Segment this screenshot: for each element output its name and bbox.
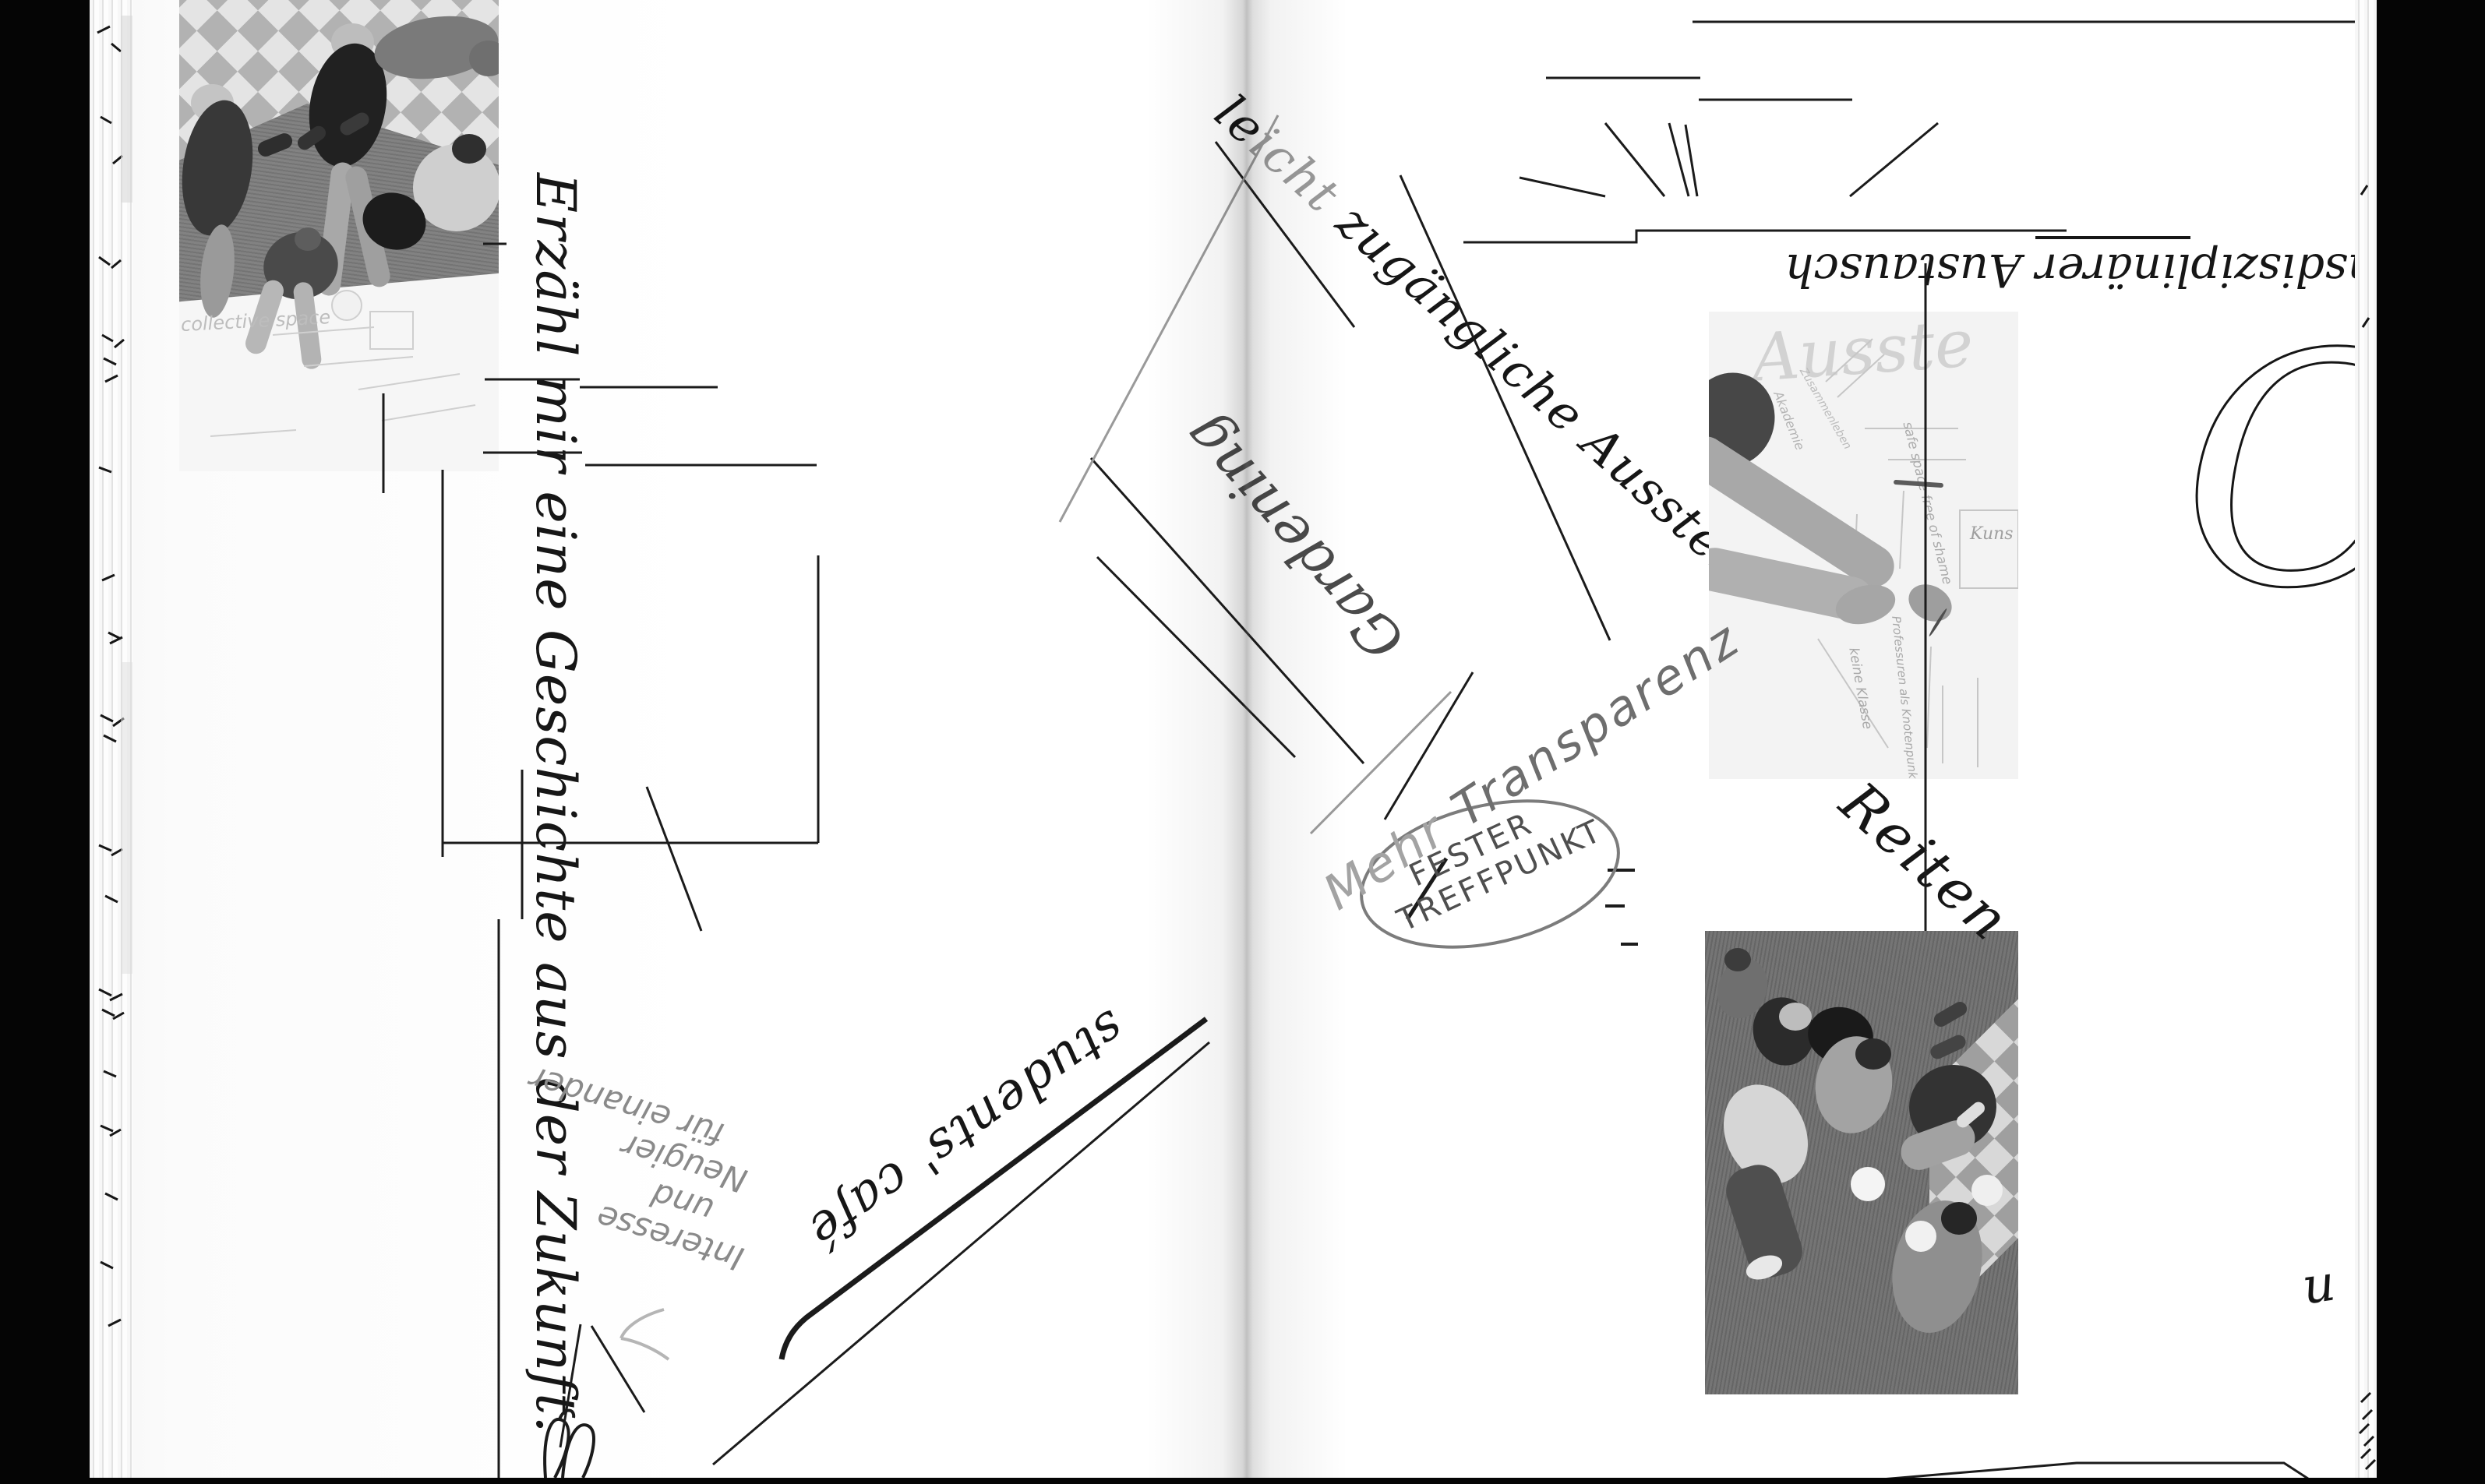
plate-2 — [1971, 1175, 2003, 1206]
fore-edge-left — [90, 0, 132, 1484]
note-austausch: nsdisziplinärer Austausch — [1784, 248, 2377, 293]
photo-writing-hands: Ausste safe space free of shame Akademie… — [1709, 312, 2018, 779]
picnic-person-6-hair — [1941, 1202, 1977, 1235]
plate-1 — [1851, 1167, 1885, 1201]
background-left — [0, 0, 90, 1484]
paper-note-kunst: Kuns — [1970, 526, 2014, 543]
austausch-underlined: linärer — [2035, 236, 2190, 297]
plate-3 — [1905, 1221, 1936, 1252]
book-spread: Erzähl mir eine Geschichte aus der Zukun… — [0, 0, 2485, 1484]
background-right — [2377, 0, 2485, 1484]
photo-picnic-group — [1705, 931, 2018, 1394]
austausch-pre: nsdiszip — [2190, 244, 2377, 297]
picnic-person-2-hair — [1779, 1003, 1812, 1031]
paper-scribbles — [179, 0, 499, 471]
edge-word-fragment: u — [2300, 1258, 2339, 1312]
picnic-person-3-hair — [1855, 1038, 1891, 1070]
picnic-person-1-hair — [1724, 948, 1751, 971]
austausch-post: Austausch — [1784, 244, 2035, 297]
photo-workshop-overhead: collective space — [179, 0, 499, 471]
background-bottom — [0, 1478, 2485, 1484]
main-title: Erzähl mir eine Geschichte aus der Zukun… — [528, 173, 583, 1154]
fore-edge-left-ticks — [90, 0, 132, 1484]
